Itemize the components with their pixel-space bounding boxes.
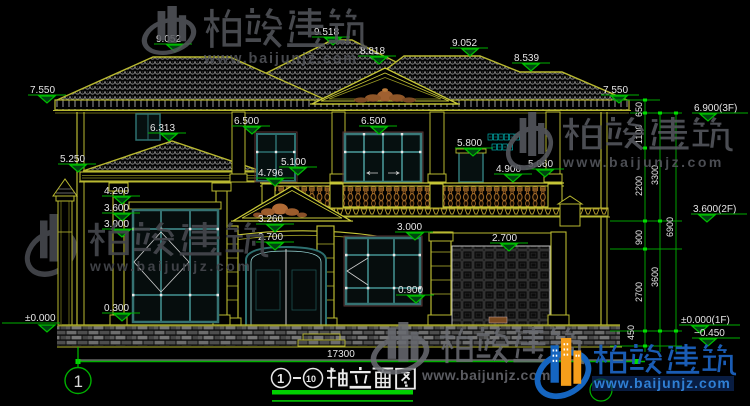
svg-text:3600: 3600	[650, 267, 660, 287]
svg-text:www.baijunjz.com: www.baijunjz.com	[203, 51, 358, 67]
svg-text:2.700: 2.700	[492, 233, 517, 244]
svg-text:6.313: 6.313	[150, 123, 175, 134]
svg-text:1: 1	[277, 371, 284, 386]
svg-text:4.200: 4.200	[104, 186, 129, 197]
svg-text:2700: 2700	[634, 282, 644, 302]
svg-text:3.000: 3.000	[397, 222, 422, 233]
svg-text:www.baijunjz.com: www.baijunjz.com	[421, 367, 551, 383]
svg-text:4.796: 4.796	[258, 168, 283, 179]
svg-text:7.550: 7.550	[30, 85, 55, 96]
svg-text:9.052: 9.052	[452, 38, 477, 49]
svg-text:6900: 6900	[665, 217, 675, 237]
svg-text:1: 1	[74, 372, 83, 391]
svg-text:17300: 17300	[327, 349, 355, 360]
svg-text:6.500: 6.500	[234, 116, 259, 127]
svg-text:0.300: 0.300	[104, 303, 129, 314]
svg-text:6.500: 6.500	[361, 116, 386, 127]
svg-text:450: 450	[626, 325, 636, 340]
svg-text:5.800: 5.800	[457, 138, 482, 149]
svg-text:−0.450: −0.450	[694, 328, 725, 339]
svg-text:7.550: 7.550	[603, 85, 628, 96]
svg-text:2200: 2200	[634, 176, 644, 196]
svg-text:0.900: 0.900	[398, 285, 423, 296]
svg-text:3.600: 3.600	[104, 203, 129, 214]
svg-text:10: 10	[306, 374, 316, 384]
svg-text:www.baijunjz.com: www.baijunjz.com	[562, 154, 724, 170]
svg-text:5.100: 5.100	[281, 157, 306, 168]
svg-text:650: 650	[634, 102, 644, 117]
svg-text:5.250: 5.250	[60, 154, 85, 165]
svg-text:www.baijunjz.com: www.baijunjz.com	[89, 258, 252, 274]
svg-text:8.539: 8.539	[514, 53, 539, 64]
svg-text:3.260: 3.260	[258, 214, 283, 225]
svg-text:3.600(2F): 3.600(2F)	[693, 204, 736, 215]
svg-text:±0.000(1F): ±0.000(1F)	[681, 315, 730, 326]
svg-text:±0.000: ±0.000	[25, 313, 56, 324]
svg-text:6.900(3F): 6.900(3F)	[694, 103, 737, 114]
svg-text:900: 900	[634, 230, 644, 245]
svg-text:www.baijunjz.com: www.baijunjz.com	[593, 375, 731, 391]
